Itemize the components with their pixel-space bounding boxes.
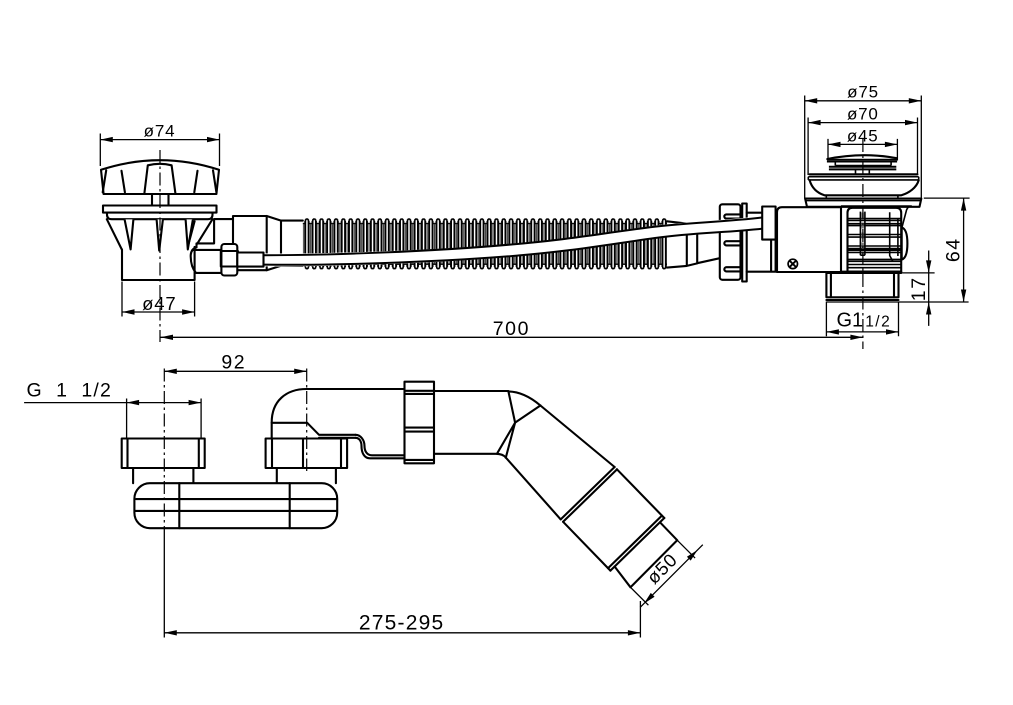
svg-text:ø70: ø70 xyxy=(847,105,879,124)
svg-text:17: 17 xyxy=(908,276,930,301)
svg-text:G 1 1/2: G 1 1/2 xyxy=(27,380,113,402)
svg-text:ø45: ø45 xyxy=(847,126,879,145)
svg-text:275-295: 275-295 xyxy=(359,612,444,635)
svg-text:ø75: ø75 xyxy=(847,83,879,102)
svg-text:ø74: ø74 xyxy=(144,121,176,140)
svg-text:ø47: ø47 xyxy=(142,293,176,314)
svg-text:64: 64 xyxy=(943,237,965,262)
svg-text:92: 92 xyxy=(221,352,246,374)
svg-text:700: 700 xyxy=(493,318,530,340)
